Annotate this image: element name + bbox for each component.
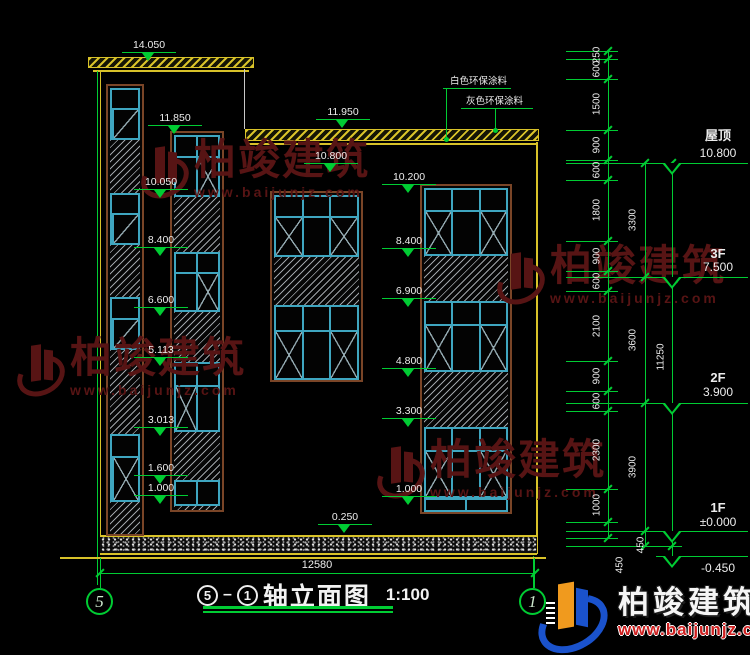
window-pane: [276, 332, 302, 378]
window-pane: [426, 190, 451, 210]
title-circle-left: 5: [197, 585, 218, 606]
level-marker-icon: [402, 299, 414, 307]
window-pane: [479, 190, 506, 210]
dimension-chain-floor: [645, 163, 646, 546]
window: [110, 88, 140, 140]
dim-label: 2100: [592, 315, 603, 337]
hatch-panel: [274, 257, 359, 305]
extension-line: [566, 180, 618, 181]
dim-label: 900: [592, 137, 603, 154]
level-marker-icon: [402, 497, 414, 505]
level-label: 11.850: [150, 113, 200, 125]
window-pane: [451, 303, 478, 324]
dim-label: 900: [592, 368, 603, 385]
title-dash: –: [223, 586, 232, 604]
window-pane: [112, 320, 138, 348]
window-pane: [196, 254, 218, 272]
window-pane: [196, 387, 218, 430]
hatch-panel: [110, 502, 140, 534]
window-pane: [176, 364, 196, 385]
level-label: 4.800: [384, 356, 434, 368]
window-block-middle: [270, 191, 363, 382]
window-pane: [196, 274, 218, 310]
roof-band-upper: [88, 57, 254, 68]
level-label: 8.400: [136, 235, 186, 247]
paint-note-white-dot: [444, 137, 449, 142]
window-pane: [112, 215, 138, 243]
extension-line: [566, 291, 618, 292]
elevation-drawing-canvas: 柏竣建筑 www.baijunjz.com 柏竣建筑 www.baijunjz.…: [0, 0, 750, 655]
floor-level-roof: 10.800: [690, 147, 746, 160]
brand-name: 柏竣建筑: [618, 587, 750, 618]
window-pane: [112, 458, 138, 500]
window-pane: [426, 500, 465, 510]
floor-marker-icon: [662, 163, 682, 175]
extension-line: [566, 411, 618, 412]
dim-label: 1000: [592, 494, 603, 516]
wall-edge-middle: [244, 69, 245, 129]
floor-level-2f: 3.900: [690, 386, 746, 399]
window-pane: [302, 197, 330, 216]
dim-label: 3900: [628, 456, 639, 478]
extension-line: [566, 538, 618, 539]
dim-label: 600: [592, 273, 603, 290]
level-label: 3.013: [136, 415, 186, 427]
level-label: 6.900: [384, 286, 434, 298]
dim-label: 1800: [592, 199, 603, 221]
level-label: 6.600: [136, 295, 186, 307]
window-pane: [196, 482, 218, 504]
level-marker-icon: [402, 419, 414, 427]
floor-marker-icon: [662, 277, 682, 289]
hatch-panel: [174, 506, 220, 510]
window-pane: [112, 110, 138, 138]
paint-note-white-leader: [443, 88, 511, 89]
extension-line: [566, 241, 618, 242]
window-pane: [426, 429, 451, 450]
dim-label: 450: [615, 557, 626, 574]
window-pane: [479, 303, 506, 324]
level-label: 3.300: [384, 406, 434, 418]
extension-line: [566, 79, 618, 80]
floor-level-1f: ±0.000: [690, 516, 746, 529]
level-label: 1.000: [136, 483, 186, 495]
dim-label: 600: [592, 393, 603, 410]
window-pane: [479, 212, 506, 254]
level-label: 5.113: [136, 345, 186, 357]
window-pane: [302, 332, 330, 378]
dim-tick: [530, 568, 539, 577]
level-marker-icon: [338, 525, 350, 533]
window-pane: [302, 218, 330, 255]
window: [424, 301, 508, 372]
extension-line: [566, 489, 618, 490]
window-pane: [451, 326, 478, 370]
window-pane: [112, 90, 138, 110]
window-pane: [196, 137, 218, 156]
dim-label: 1500: [592, 93, 603, 115]
level-marker-icon: [154, 308, 166, 316]
level-marker-icon: [402, 369, 414, 377]
window-pane: [302, 307, 330, 330]
width-dimension-label: 12580: [285, 559, 349, 571]
paint-note-gray-dot: [493, 128, 498, 133]
dim-label: 900: [592, 248, 603, 265]
roof-band-lower-underline: [249, 143, 537, 145]
level-label: 1.000: [384, 484, 434, 496]
level-marker-icon: [154, 428, 166, 436]
window-pane: [276, 197, 302, 216]
window-pane: [479, 452, 506, 496]
title-underline: [203, 611, 393, 613]
level-label: 0.250: [320, 512, 370, 524]
level-marker-icon: [154, 496, 166, 504]
window: [274, 195, 359, 257]
window-transom: [424, 498, 508, 512]
dim-label: 600: [592, 61, 603, 78]
extension-line: [566, 130, 618, 131]
floor-name-1f: 1F: [690, 501, 746, 515]
window-pane: [426, 303, 451, 324]
level-label: 14.050: [124, 40, 174, 52]
floor-level-3f: 7.500: [690, 261, 746, 274]
hatch-panel: [424, 256, 508, 301]
axis-bubble-left-label: 5: [95, 592, 104, 612]
window-pane: [479, 326, 506, 370]
window-pane: [479, 429, 506, 450]
window-pane: [276, 218, 302, 255]
level-marker-icon: [336, 120, 348, 128]
window-pane: [329, 218, 357, 255]
level-label: 1.600: [136, 463, 186, 475]
window-pane: [451, 452, 478, 496]
window-pane: [112, 299, 138, 320]
dim-label: 2300: [592, 439, 603, 461]
window-pane: [112, 436, 138, 458]
dim-label: 450: [636, 537, 647, 554]
dimension-chain-overall: [672, 163, 673, 556]
window-pane: [112, 195, 138, 215]
axis-line-left: [97, 71, 98, 585]
dim-label-overall: 11250: [656, 343, 667, 370]
level-marker-icon: [154, 248, 166, 256]
level-marker-icon: [402, 185, 414, 193]
window-pane: [196, 364, 218, 385]
wall-edge-right: [536, 142, 538, 554]
dim-label: 600: [592, 162, 603, 179]
paint-note-white-leader: [446, 88, 447, 138]
level-label: 11.950: [318, 107, 368, 119]
watermark-url: www.baijunjz.com: [550, 290, 726, 306]
level-marker-icon: [168, 126, 180, 134]
floor-marker-icon: [662, 556, 682, 568]
level-label: 10.200: [384, 172, 434, 184]
roof-band-upper-underline: [93, 70, 249, 72]
level-label: 10.800: [306, 151, 356, 163]
level-marker-icon: [154, 358, 166, 366]
dim-label: 3600: [628, 329, 639, 351]
brand-logo-icon: [534, 580, 608, 646]
floor-name-2f: 2F: [690, 371, 746, 385]
window-pane: [451, 212, 478, 254]
window-pane: [329, 332, 357, 378]
level-marker-icon: [142, 53, 154, 61]
window-pane: [451, 190, 478, 210]
level-marker-icon: [154, 190, 166, 198]
wall-edge-left: [100, 71, 101, 535]
window: [274, 305, 359, 380]
axis-bubble-left: 5: [86, 588, 113, 615]
watermark-logo-icon: [16, 341, 62, 395]
window-pane: [451, 429, 478, 450]
dimension-chain-inner: [608, 51, 609, 538]
window-pane: [329, 307, 357, 330]
paint-note-gray-leader: [461, 108, 533, 109]
title-underline: [203, 606, 393, 609]
floor-level-base: -0.450: [690, 562, 746, 575]
window: [424, 188, 508, 256]
level-label: 10.050: [136, 177, 186, 189]
brand-url: www.baijunjz.com: [618, 620, 750, 640]
window-pane: [196, 158, 218, 195]
extension-line: [566, 361, 618, 362]
window-pane: [465, 500, 506, 510]
window: [424, 427, 508, 498]
extension-line: [566, 522, 618, 523]
dim-label: 3300: [628, 209, 639, 231]
brand-block: 柏竣建筑 www.baijunjz.com: [534, 580, 750, 646]
floor-marker-icon: [662, 531, 682, 543]
plinth-band: [100, 535, 537, 555]
width-dimension-line: [100, 573, 535, 574]
paint-note-gray: 灰色环保涂料: [466, 97, 523, 107]
floor-marker-icon: [662, 403, 682, 415]
paint-note-gray-leader: [495, 108, 496, 130]
floor-name-roof: 屋顶: [690, 129, 746, 143]
level-marker-icon: [324, 164, 336, 172]
level-label: 8.400: [384, 236, 434, 248]
window-pane: [276, 307, 302, 330]
title-scale: 1:100: [386, 585, 429, 605]
window-pane: [176, 254, 196, 272]
hatch-panel: [110, 245, 140, 297]
title-circle-right: 1: [237, 585, 258, 606]
paint-note-white: 白色环保涂料: [450, 77, 507, 87]
window-pane: [176, 137, 196, 156]
extension-line-floor: [566, 546, 682, 547]
level-marker-icon: [402, 249, 414, 257]
hatch-panel: [424, 372, 508, 427]
window-pane: [329, 197, 357, 216]
window-column-right: [420, 184, 512, 514]
